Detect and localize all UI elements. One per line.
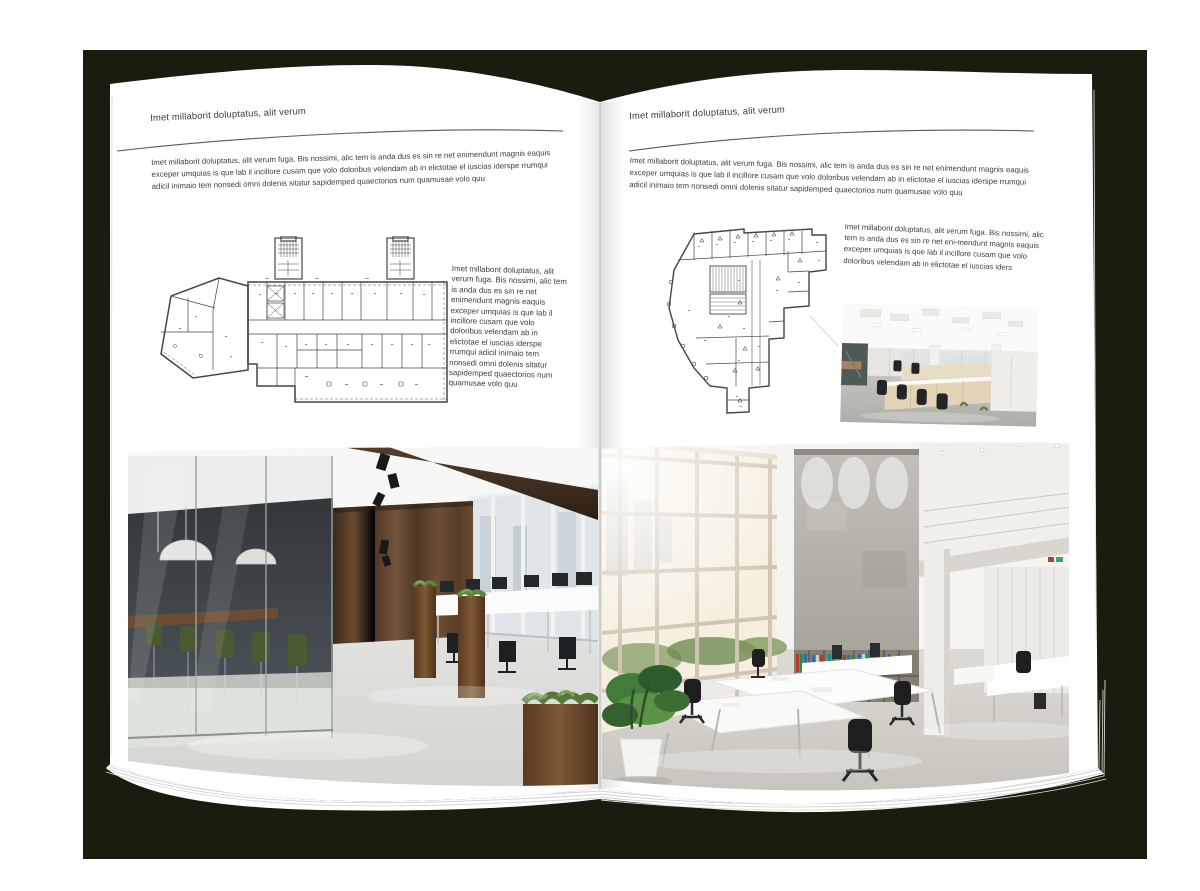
concrete-wall	[794, 449, 919, 650]
plan-annotations	[688, 239, 820, 407]
photo-right-office	[602, 441, 1070, 791]
meeting-room	[128, 456, 333, 748]
right-side-text: Imet millaborit doluptatus, alit verum f…	[843, 221, 1055, 275]
right-header-rule	[628, 124, 1038, 156]
left-side-text: Imet millaborit doluptatus, alit verum f…	[449, 264, 568, 392]
floor-plan-right	[648, 220, 840, 422]
first-aid-sign	[1048, 557, 1054, 562]
photo-left-office	[128, 446, 598, 788]
photo-small-office	[840, 303, 1039, 427]
floor-plan-left	[155, 236, 450, 418]
exit-sign	[1056, 557, 1063, 562]
plan-annotations	[179, 278, 430, 385]
magazine-mockup-scene: Imet millaborit doluptatus, alit verum I…	[0, 0, 1200, 891]
